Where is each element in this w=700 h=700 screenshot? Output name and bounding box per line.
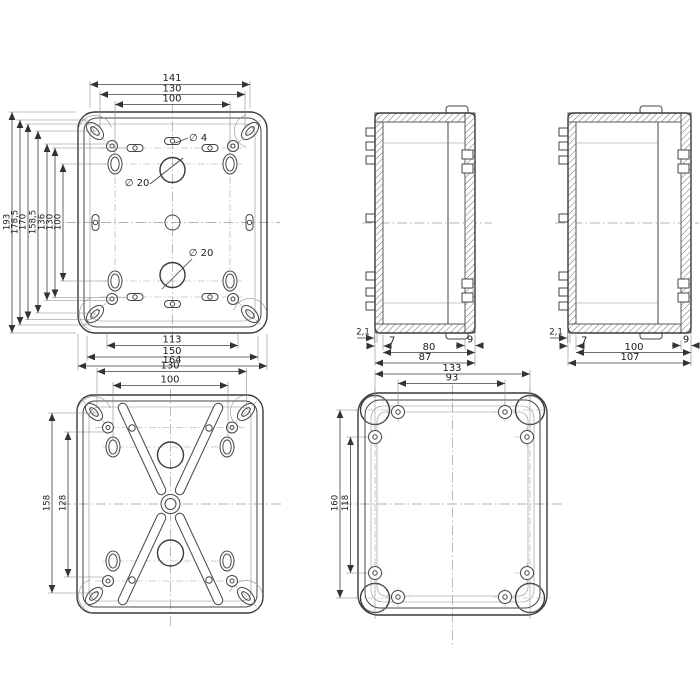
bottom-wall-section bbox=[375, 324, 475, 333]
cover-screw bbox=[515, 427, 539, 447]
extension-lines bbox=[48, 413, 104, 593]
corner-screw bbox=[103, 576, 114, 587]
dim-label: 170 bbox=[19, 214, 29, 230]
knockout-oval bbox=[108, 271, 122, 291]
dim-label: 100 bbox=[54, 214, 64, 230]
cover-view: 133 93 160 118 bbox=[331, 363, 566, 648]
cover-screw bbox=[515, 563, 539, 583]
side-view-87: 2,1 7 80 9 87 bbox=[356, 106, 492, 366]
mounting-clip bbox=[92, 215, 99, 231]
corner-screw bbox=[103, 422, 114, 433]
wall-tabs bbox=[366, 128, 375, 310]
left-wall-section bbox=[375, 113, 383, 333]
dim-label: 9 bbox=[467, 335, 473, 346]
dim-label: 2,1 bbox=[549, 328, 563, 338]
dim-label: 87 bbox=[419, 352, 432, 363]
corner-screw bbox=[107, 141, 118, 152]
rib-hole bbox=[206, 425, 212, 431]
wall-tabs bbox=[559, 128, 568, 310]
dim-label: 9 bbox=[683, 335, 689, 346]
mounting-clip bbox=[202, 145, 218, 152]
dim-label: 7 bbox=[389, 336, 395, 347]
dim-label: 100 bbox=[160, 375, 179, 386]
dim-label: 128 bbox=[59, 495, 69, 511]
rib-hole bbox=[206, 577, 212, 583]
cover-screw-dome bbox=[354, 577, 396, 619]
side87-outline bbox=[375, 113, 475, 333]
left-wall-section bbox=[568, 113, 576, 333]
top-wall-section bbox=[568, 113, 691, 122]
mounting-clip bbox=[127, 145, 143, 152]
knockout-oval bbox=[106, 551, 120, 571]
dim-label: 113 bbox=[162, 335, 181, 346]
technical-drawing: ∅ 20 ∅ 20 ∅ 4 141 130 100 193 178,5 170 … bbox=[0, 0, 700, 700]
dim-label: ∅ 4 bbox=[189, 133, 207, 144]
knockout-oval bbox=[223, 271, 237, 291]
rib-hole bbox=[129, 577, 135, 583]
top-wall-section bbox=[375, 113, 475, 122]
dim-label: 118 bbox=[341, 495, 351, 511]
mounting-clip bbox=[165, 138, 181, 145]
dim-label: 7 bbox=[581, 336, 587, 347]
mounting-clip bbox=[127, 294, 143, 301]
mounting-clip bbox=[202, 294, 218, 301]
dim-label: 160 bbox=[331, 495, 341, 511]
corner-screw bbox=[228, 294, 239, 305]
knockout-oval bbox=[223, 154, 237, 174]
front-view: ∅ 20 ∅ 20 ∅ 4 141 130 100 193 178,5 170 … bbox=[3, 73, 281, 370]
corner-screw bbox=[107, 294, 118, 305]
dim-label: 130 bbox=[160, 361, 179, 372]
bottom-wall-section bbox=[568, 324, 691, 333]
back-view: 130 100 158 128 bbox=[43, 361, 285, 627]
dim-label: 93 bbox=[446, 373, 459, 384]
leader-top-hole bbox=[150, 158, 183, 184]
knockout-oval bbox=[220, 551, 234, 571]
knockout-oval bbox=[220, 437, 234, 457]
side-view-107: 2,1 7 100 9 107 bbox=[549, 106, 699, 366]
dim-label: 2,1 bbox=[356, 328, 370, 338]
rib-hole bbox=[129, 425, 135, 431]
dim-label: 141 bbox=[162, 73, 181, 84]
rib-hub bbox=[161, 495, 180, 514]
knockout-oval bbox=[108, 154, 122, 174]
cover-screw-dome bbox=[509, 577, 551, 619]
corner-screw bbox=[227, 576, 238, 587]
dim-label: 100 bbox=[162, 94, 181, 105]
cover-screw bbox=[386, 587, 410, 607]
dim-label: 158 bbox=[43, 495, 53, 511]
mounting-clip bbox=[246, 215, 253, 231]
dim-label: ∅ 20 bbox=[125, 178, 150, 189]
corner-screw bbox=[228, 141, 239, 152]
dim-label: 107 bbox=[620, 352, 639, 363]
mounting-clip bbox=[165, 301, 181, 308]
cover-screw bbox=[493, 587, 517, 607]
dim-label: ∅ 20 bbox=[189, 248, 214, 259]
